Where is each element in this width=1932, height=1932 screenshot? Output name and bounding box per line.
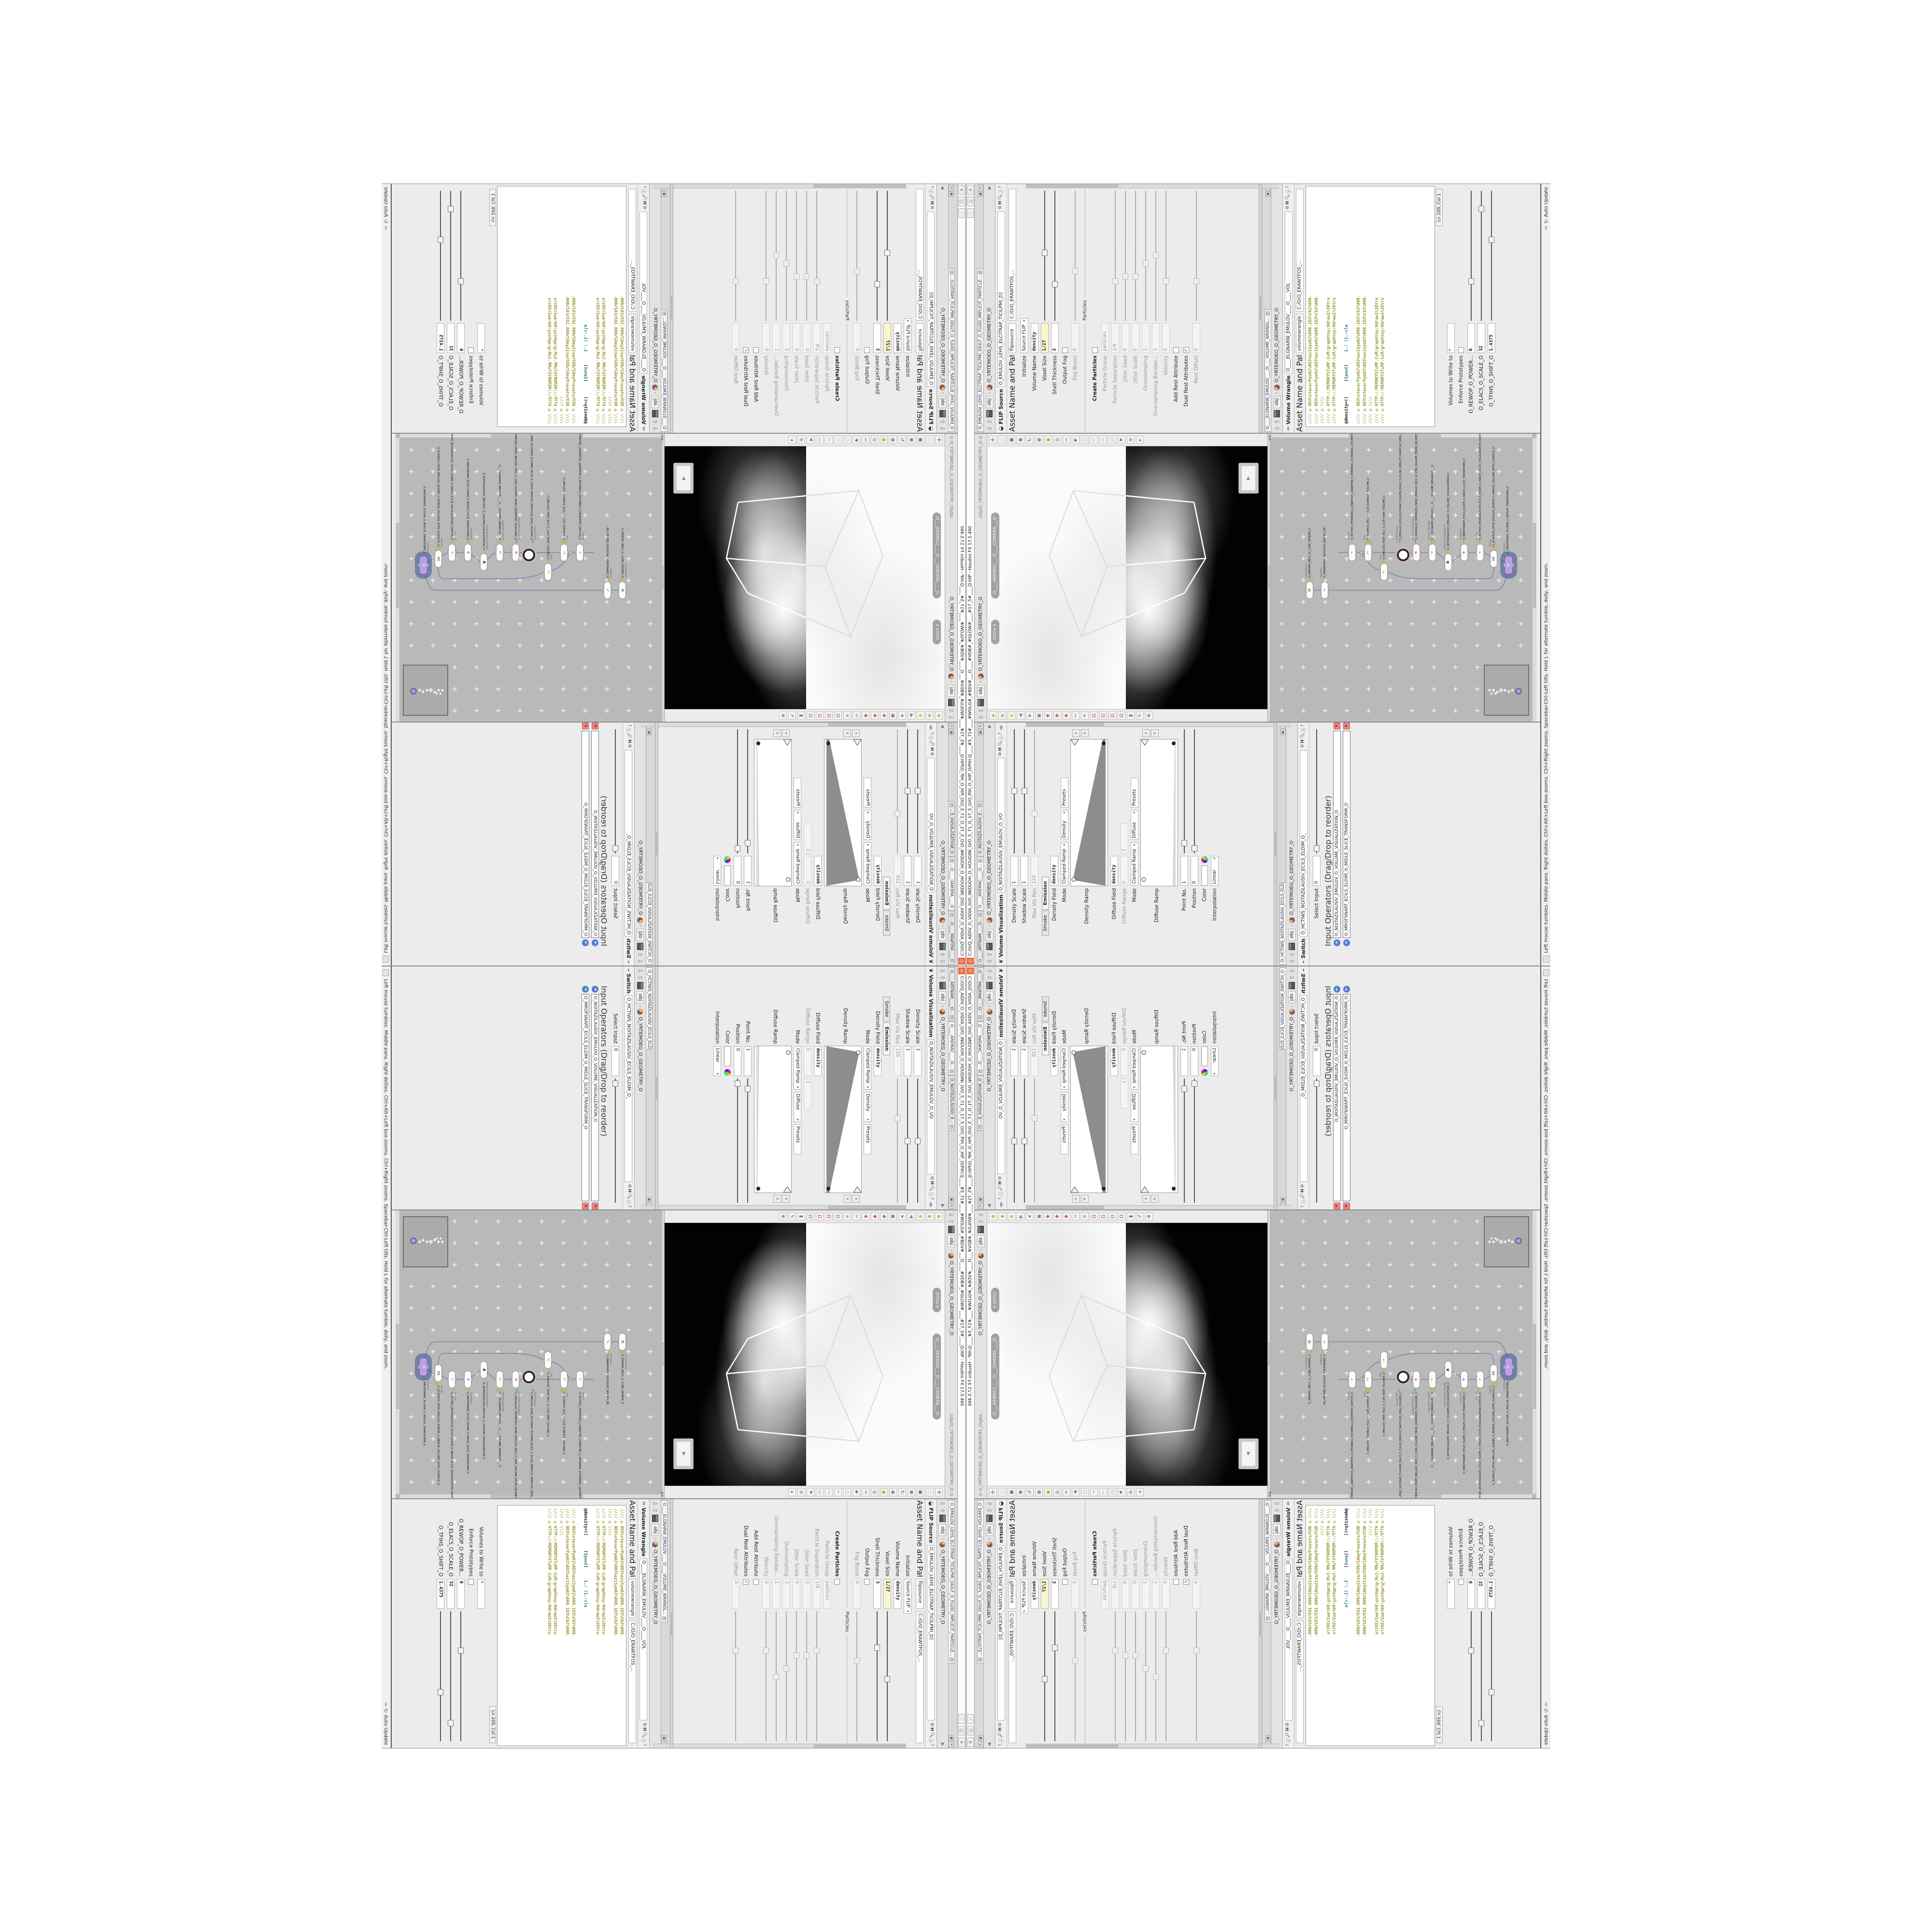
param-field[interactable]: 1: [914, 1046, 922, 1076]
pane-split-icon[interactable]: ▣: [978, 1735, 983, 1741]
pane-menu-icon[interactable]: ▾: [978, 185, 983, 190]
param-field[interactable]: particles: [824, 323, 831, 353]
network-node[interactable]: ✛: [419, 555, 428, 575]
viewport-tool-icon[interactable]: ✚: [871, 711, 879, 720]
param-field[interactable]: 0: [1132, 1579, 1139, 1609]
node-flag-dot[interactable]: [1430, 540, 1432, 543]
viewport-tool-icon[interactable]: ⊗: [908, 1488, 915, 1496]
param-field[interactable]: density: [1110, 856, 1118, 886]
viewport-tool-icon[interactable]: Ω: [807, 711, 814, 720]
reorder-arrow-icon[interactable]: ➜: [1334, 939, 1340, 946]
param-field[interactable]: Clamped Ramp: [1061, 842, 1068, 886]
nav-down-icon[interactable]: ⇩: [978, 715, 984, 720]
viewport-tool-icon[interactable]: ◌: [926, 1488, 934, 1496]
vex-code-editor[interactable]: //// ◎ 0D3%steserPym62%0D3%eziSym62%000.…: [489, 1505, 626, 1746]
viewport-tool-icon[interactable]: Ω: [816, 711, 824, 720]
viewport[interactable]: ◆◈◆◀➤▣✚✚✚✂✳ΩΩΩΩ▮✎❋ ✛◌▣⊗↻●◉◎✑☛○⌐¬▭⚑⊕▸: [987, 1210, 1267, 1498]
node-flag-dot[interactable]: [561, 1389, 563, 1392]
param-slider[interactable]: [776, 191, 777, 321]
param-field[interactable]: *: [478, 1579, 485, 1609]
viewport-tool-icon[interactable]: ◈: [926, 1212, 934, 1221]
param-field[interactable]: 1: [1021, 856, 1028, 886]
switch-name-field[interactable]: O_HCTIWS_NOITAZILAUSIV_ECILS_ELDIM_O_: [625, 995, 633, 1182]
pane-split-icon[interactable]: ▣: [978, 730, 983, 735]
asset-path-field[interactable]: C:/O/O_ERAWTFOS_...: [916, 1611, 924, 1743]
brush-icon[interactable]: ✑: [383, 1702, 389, 1706]
reorder-arrow-icon[interactable]: ➜: [582, 986, 589, 993]
param-slider[interactable]: [1054, 1611, 1055, 1741]
nav-down-icon[interactable]: ⇩: [939, 959, 946, 964]
asset-name-field[interactable]: volumewrangle: [1296, 314, 1304, 353]
viewport-tool-icon[interactable]: ◆: [935, 1212, 943, 1221]
checkbox-add-rest-attribute[interactable]: [753, 347, 759, 353]
pane-tab[interactable]: O_NOITAZILAUSIV_E...×: [949, 1076, 955, 1131]
tab-flip-pane[interactable]: O_EMULOV_LEHS_ELCITRAP_TICILPMI_DIULF_O_…: [977, 269, 983, 432]
param-slider[interactable]: [857, 1611, 858, 1741]
param-field[interactable]: 32: [447, 1579, 455, 1609]
param-field[interactable]: 3: [1051, 1579, 1059, 1609]
pane-split-icon[interactable]: ▣: [661, 191, 667, 197]
param-slider[interactable]: [1034, 1079, 1035, 1203]
param-field[interactable]: 32: [1477, 323, 1485, 353]
param-slider[interactable]: [1034, 729, 1035, 853]
pane-tab[interactable]: O____AREMAC____O...×: [949, 1022, 955, 1075]
tab-close-icon[interactable]: ×: [979, 1015, 982, 1019]
param-slider[interactable]: [1075, 191, 1076, 321]
breadcrumb-node[interactable]: O_YRTEMOEG_O_GEOMETRY_O: [940, 1017, 945, 1091]
param-slider[interactable]: [440, 1611, 441, 1741]
pane-menu-icon[interactable]: ▾: [949, 185, 954, 190]
vex-code-editor[interactable]: //// ◎ 0D3%steserPym62%0D3%eziSym62%000.…: [1306, 186, 1443, 427]
param-field[interactable]: 0: [804, 1046, 812, 1076]
viewport-tool-icon[interactable]: ⊕: [1127, 436, 1135, 444]
viewport-tool-icon[interactable]: ◀: [1017, 711, 1024, 720]
viewport-tool-icon[interactable]: ✛: [989, 1488, 997, 1496]
viewport-tool-icon[interactable]: ⊗: [908, 436, 915, 444]
viewport-tool-icon[interactable]: ⚑: [1118, 1488, 1125, 1496]
network-node[interactable]: ✛: [1461, 544, 1468, 561]
param-slider[interactable]: [1481, 191, 1482, 321]
volviz-scrollbar[interactable]: [641, 1205, 907, 1209]
breadcrumb-root[interactable]: obj: [1273, 1524, 1281, 1536]
pane-spinner-icon[interactable]: ◀▶: [929, 724, 933, 730]
breadcrumb-node[interactable]: O_YRTEMOEG_O_GEOMETRY_O: [978, 597, 983, 671]
tab-flip-pane[interactable]: O_EMULOV_LEHS_ELCITRAP_TICILPMI_DIULF_O_…: [949, 1500, 955, 1663]
param-slider[interactable]: [1054, 191, 1055, 321]
network-node[interactable]: ⌁: [448, 1371, 455, 1388]
switch-name-field[interactable]: O_HCTIWS_NOITAZILAUSIV_ECILS_ELDIM_O_: [1300, 995, 1307, 1182]
network-hscrollbar[interactable]: [1532, 438, 1536, 722]
param-field[interactable]: particles: [1101, 1579, 1109, 1609]
viewport-tool-icon[interactable]: Ω: [834, 711, 842, 720]
viewport-tool-icon[interactable]: ➤: [898, 711, 906, 720]
ramp-widget[interactable]: Diffuse Ramp+×: [1140, 727, 1178, 965]
camera-pill[interactable]: O____AREMAC___O____CAMERA___O: [933, 1334, 941, 1420]
pane-splitter[interactable]: [1259, 1499, 1262, 1748]
presets-button[interactable]: Presets: [1131, 778, 1138, 808]
pane-tab[interactable]: O____ARTNAM____O...×: [977, 967, 983, 1021]
network-editor[interactable]: ⌁SwitchO_HCTIWS_YRTEMOEG_LANRETXE_LANRET…: [396, 434, 661, 722]
path-more-button[interactable]: ▶: [940, 1204, 945, 1207]
nav-up-icon[interactable]: ⇧: [1274, 419, 1280, 424]
param-slider[interactable]: [1471, 1611, 1472, 1741]
nav-up-icon[interactable]: ⇧: [986, 975, 993, 980]
viewport-tool-icon[interactable]: ☛: [1072, 1488, 1080, 1496]
viewport-tool-icon[interactable]: ✚: [880, 711, 888, 720]
ramp-widget[interactable]: Density Ramp+×: [824, 727, 862, 965]
asset-path-field[interactable]: C:/O/O_ERAWTFOS_...: [1296, 1620, 1304, 1743]
tab-wrangle-pane[interactable]: O____ELGNARW_EMULOV____O____VOLUME_WRANG…: [1264, 310, 1271, 432]
tab-close-icon[interactable]: ×: [950, 913, 953, 917]
param-field[interactable]: 6: [1467, 323, 1475, 353]
param-field[interactable]: density: [1031, 1579, 1038, 1609]
viewport-tool-icon[interactable]: ➤: [1026, 1212, 1034, 1221]
param-slider[interactable]: [1194, 1079, 1195, 1203]
ramp-remove-button[interactable]: ×: [773, 1195, 781, 1203]
asset-name-field[interactable]: flipsource: [916, 1579, 924, 1609]
volviz-name-field[interactable]: O_NOITAZILAUSIV_EMULOV_O_VO: [997, 1039, 1005, 1174]
viewport-tool-icon[interactable]: ◉: [1044, 1488, 1052, 1496]
refresh-icon[interactable]: ↻: [383, 219, 389, 224]
node-flag-dot[interactable]: [532, 1389, 534, 1392]
tab-close-icon[interactable]: ×: [979, 1658, 982, 1662]
param-field[interactable]: 3: [1051, 323, 1059, 353]
tab-close-icon[interactable]: ×: [979, 270, 982, 274]
node-flag-dot[interactable]: [1381, 1370, 1384, 1372]
pane-split-icon[interactable]: ▣: [1280, 1197, 1286, 1202]
node-flag-dot[interactable]: [1365, 1389, 1368, 1392]
tab-close-icon[interactable]: ×: [662, 1617, 666, 1620]
pin-icon[interactable]: ⊙: [979, 436, 983, 440]
param-field[interactable]: Clamped Ramp: [794, 842, 802, 886]
node-flag-dot[interactable]: [619, 578, 622, 581]
viewport-tool-icon[interactable]: ✚: [1053, 1212, 1061, 1221]
param-slider[interactable]: [1044, 1611, 1045, 1741]
viewport-tool-icon[interactable]: Ω: [816, 1212, 824, 1221]
param-slider[interactable]: [615, 729, 616, 853]
viewport-tool-icon[interactable]: ☛: [1072, 436, 1080, 444]
pane-splitter[interactable]: [670, 184, 673, 433]
viewport-tool-icon[interactable]: ❋: [779, 711, 787, 720]
nav-up-icon[interactable]: ⇧: [637, 952, 644, 957]
nav-down-icon[interactable]: ⇩: [652, 1501, 659, 1506]
network-node[interactable]: ✄: [1364, 544, 1372, 561]
maximize-button[interactable]: ▢: [967, 1726, 974, 1735]
color-swatch[interactable]: [724, 1046, 731, 1066]
viewport-tool-icon[interactable]: ◆: [917, 1212, 924, 1221]
minimize-button[interactable]: –: [967, 1714, 974, 1724]
param-field[interactable]: 1/9: [813, 323, 821, 353]
wrangle-name-field[interactable]: O____ELGNARW_EMULOV____O____VOL: [640, 1559, 648, 1721]
param-slider[interactable]: [1075, 1611, 1076, 1741]
param-slider[interactable]: [1491, 1611, 1492, 1741]
viewport-tool-icon[interactable]: ➤: [898, 1212, 906, 1221]
nav-up-icon[interactable]: ⇧: [637, 975, 644, 980]
ramp-target-select[interactable]: Diffuse: [1131, 1092, 1138, 1122]
network-node[interactable]: ∿: [604, 582, 611, 599]
network-node[interactable]: ✑: [1429, 1371, 1436, 1388]
param-field[interactable]: 0: [1121, 1046, 1128, 1076]
param-field[interactable]: 0: [1122, 1579, 1129, 1609]
viewport-tool-icon[interactable]: Ω: [1099, 711, 1107, 720]
remove-input-icon[interactable]: ✕: [582, 723, 589, 729]
input-operator-field[interactable]: O_NOITAZILAUSIV_EMULOV_O_VOLUME_VISUALIZ…: [591, 994, 599, 1201]
network-node[interactable]: ✄: [544, 563, 552, 581]
asset-path-field[interactable]: C:/O/O_ERAWTFOS_...: [1009, 1611, 1016, 1743]
ramp-widget[interactable]: Density Ramp+×: [824, 967, 862, 1205]
breadcrumb-root[interactable]: obj: [652, 1524, 659, 1536]
network-editor[interactable]: ⌁SwitchO_HCTIWS_YRTEMOEG_LANRETXE_LANRET…: [1271, 434, 1536, 722]
viewport-tool-icon[interactable]: ▸: [788, 436, 796, 444]
param-field[interactable]: 1/27: [884, 323, 892, 353]
volviz-scrollbar[interactable]: [641, 723, 907, 727]
ramp-target-select[interactable]: Diffuse: [794, 810, 802, 840]
network-node[interactable]: ✑: [496, 544, 503, 561]
wrangle-name-field[interactable]: O____ELGNARW_EMULOV____O____VOL: [640, 212, 648, 374]
node-flag-dot[interactable]: [1477, 1389, 1480, 1392]
viewport-tool-icon[interactable]: ✎: [1136, 1212, 1144, 1221]
ramp-remove-button[interactable]: ×: [1151, 729, 1159, 737]
ramp-widget[interactable]: Diffuse Ramp+×: [754, 967, 792, 1205]
tab-close-icon[interactable]: ×: [979, 1069, 982, 1073]
flip-name-field[interactable]: O_EMULOV_LEHS_ELCITRAP_TICILPMI_D]: [927, 212, 935, 387]
remove-input-icon[interactable]: ✕: [1334, 723, 1340, 729]
nav-up-icon[interactable]: ⇧: [939, 975, 946, 980]
param-field[interactable]: Linear: [1211, 856, 1219, 886]
flip-scrollbar[interactable]: [1025, 184, 1279, 188]
ramp-widget[interactable]: Diffuse Ramp+×: [754, 727, 792, 965]
viewport-tool-icon[interactable]: ¬: [1099, 436, 1107, 444]
presets-button[interactable]: Presets: [864, 778, 872, 808]
pane-menu-icon[interactable]: ▾: [949, 724, 954, 729]
param-field[interactable]: 1: [904, 856, 912, 886]
node-flag-dot[interactable]: [1414, 540, 1416, 543]
path-more-button[interactable]: ▶: [987, 1743, 992, 1746]
node-flag-dot[interactable]: [1462, 1389, 1464, 1392]
network-editor[interactable]: ⌁SwitchO_HCTIWS_YRTEMOEG_LANRETXE_LANRET…: [396, 1210, 661, 1498]
node-flag-dot[interactable]: [1433, 1389, 1435, 1392]
nav-down-icon[interactable]: ⇩: [939, 968, 946, 973]
auto-update-selector[interactable]: Auto Update: [1544, 187, 1549, 217]
viewport-tool-icon[interactable]: ▣: [1008, 436, 1015, 444]
network-node[interactable]: ✑: [496, 1371, 503, 1388]
nav-up-icon[interactable]: ⇧: [652, 419, 659, 424]
checkbox-create-particles[interactable]: [835, 1579, 840, 1585]
param-field[interactable]: density: [1051, 856, 1058, 886]
nav-up-icon[interactable]: ⇧: [948, 708, 955, 713]
param-field[interactable]: 1: [904, 1046, 912, 1076]
param-field[interactable]: 1: [914, 856, 922, 886]
node-flag-dot[interactable]: [532, 540, 534, 543]
network-hscrollbar[interactable]: [396, 1210, 400, 1494]
checkbox-dual-rest-attributes[interactable]: ✓: [1183, 1579, 1189, 1585]
viewport-tool-icon[interactable]: ◆: [989, 711, 997, 720]
param-field[interactable]: 1: [1180, 1046, 1188, 1076]
param-field[interactable]: density: [1031, 323, 1038, 353]
viewport-tool-icon[interactable]: ◉: [880, 436, 888, 444]
viewport-tool-icon[interactable]: ▣: [889, 711, 897, 720]
param-field[interactable]: density: [1051, 1046, 1058, 1076]
node-flag-dot[interactable]: [1462, 540, 1464, 543]
viewport-tool-icon[interactable]: ▣: [1035, 711, 1043, 720]
viewport-tool-icon[interactable]: ◉: [1044, 436, 1052, 444]
pane-menu-icon[interactable]: ▾: [978, 1203, 983, 1208]
switch-name-field[interactable]: O_HCTIWS_NOITAZILAUSIV_ECILS_ELDIM_O_: [1300, 750, 1307, 937]
nav-up-icon[interactable]: ⇧: [986, 1508, 993, 1513]
checkbox-dual-rest-attributes[interactable]: ✓: [743, 1579, 749, 1585]
param-slider[interactable]: [817, 1611, 818, 1741]
param-slider[interactable]: [807, 191, 808, 321]
param-slider[interactable]: [1014, 1079, 1015, 1203]
param-field[interactable]: density: [894, 1579, 902, 1609]
breadcrumb-node[interactable]: O_YRTEMOEG_O_GEOMETRY_O: [653, 1549, 658, 1624]
breadcrumb-node[interactable]: O_YRTEMOEG_O_GEOMETRY_O: [949, 1261, 954, 1335]
tab-close-icon[interactable]: ×: [950, 859, 953, 863]
viewport-tool-icon[interactable]: ◉: [880, 1488, 888, 1496]
param-field[interactable]: 0: [853, 1579, 861, 1609]
param-slider[interactable]: [796, 191, 797, 321]
color-wheel-icon[interactable]: [724, 1069, 731, 1076]
tab-close-icon[interactable]: ×: [950, 803, 953, 807]
pane-tab[interactable]: O____AREMAC____O...×: [977, 857, 983, 910]
param-slider[interactable]: [1014, 729, 1015, 853]
viewport-tool-icon[interactable]: ◎: [1053, 1488, 1061, 1496]
node-flag-dot[interactable]: [1322, 578, 1324, 581]
viewport-tool-icon[interactable]: ⊗: [1017, 1488, 1024, 1496]
subtab-smoke[interactable]: Smoke: [883, 910, 890, 936]
remove-input-icon[interactable]: ✕: [1334, 1203, 1340, 1209]
volviz-scrollbar[interactable]: [1025, 723, 1291, 727]
param-field[interactable]: particles: [824, 1579, 831, 1609]
pane-splitter[interactable]: [670, 1499, 673, 1748]
viewport-tool-icon[interactable]: ◀: [1017, 1212, 1024, 1221]
node-flag-dot[interactable]: [468, 540, 470, 543]
node-flag-dot[interactable]: [1310, 578, 1313, 581]
ramp-target-select[interactable]: Diffuse: [1131, 810, 1138, 840]
subtab-emission[interactable]: Emission: [883, 877, 890, 909]
tab-switch-pane[interactable]: O_HCTIWS_NOITAZILAUSIV_ECILS_ELDIM_O_...…: [646, 967, 653, 1050]
node-flag-dot[interactable]: [564, 540, 567, 543]
network-node[interactable]: ✛: [464, 1371, 471, 1388]
reorder-arrow-icon[interactable]: ➜: [582, 939, 589, 946]
ramp-add-button[interactable]: +: [782, 1195, 790, 1203]
nav-down-icon[interactable]: ⇩: [1274, 426, 1280, 431]
viewport-tool-icon[interactable]: ◆: [1008, 1212, 1015, 1221]
param-field[interactable]: 0: [734, 856, 742, 886]
tab-close-icon[interactable]: ×: [662, 312, 666, 315]
window-titlebar[interactable]: ◎ C:/O/Q_AIDIV_O_VIDIA_O/O_INIDUOH_O_HOU…: [957, 184, 966, 966]
param-slider[interactable]: [1135, 191, 1136, 321]
param-slider[interactable]: [738, 729, 739, 853]
param-slider[interactable]: [1196, 191, 1197, 321]
viewport-tool-icon[interactable]: ▮: [1127, 1212, 1135, 1221]
breadcrumb-root[interactable]: obj: [652, 396, 659, 408]
node-flag-dot[interactable]: [439, 1383, 441, 1385]
breadcrumb-node[interactable]: O_YRTEMOEG_O_GEOMETRY_O: [638, 1017, 643, 1091]
viewport-tool-icon[interactable]: ✳: [843, 711, 851, 720]
network-minimap[interactable]: [1484, 1216, 1529, 1267]
viewport-tool-icon[interactable]: ⌐: [834, 1488, 842, 1496]
viewport-tool-icon[interactable]: ✚: [862, 711, 869, 720]
nav-down-icon[interactable]: ⇩: [1289, 959, 1295, 964]
viewport-tool-icon[interactable]: ¬: [1099, 1488, 1107, 1496]
view-mode-pill[interactable]: Ortho ▾: [933, 620, 941, 644]
input-operator-field[interactable]: O_MROFSNART_ECILS_ELDIM_O_MIDLE_SLICE_TR…: [582, 731, 589, 938]
breadcrumb-root[interactable]: obj: [986, 929, 994, 941]
flip-scrollbar[interactable]: [653, 1744, 907, 1748]
network-hscrollbar[interactable]: [1532, 1210, 1536, 1494]
pin-icon[interactable]: ⊙: [949, 1492, 954, 1496]
nav-up-icon[interactable]: ⇧: [1274, 1508, 1280, 1513]
param-field[interactable]: density: [814, 1046, 822, 1076]
ramp-add-button[interactable]: +: [1142, 1195, 1150, 1203]
color-wheel-icon[interactable]: [1201, 1069, 1208, 1076]
close-button[interactable]: ✕: [959, 1737, 965, 1747]
node-flag-dot[interactable]: [1414, 1389, 1416, 1392]
param-field[interactable]: 1: [1152, 323, 1160, 353]
param-slider[interactable]: [736, 1611, 737, 1741]
node-flag-dot[interactable]: [452, 1389, 455, 1392]
viewport-tool-icon[interactable]: ▸: [1136, 1488, 1144, 1496]
param-field[interactable]: 1: [1152, 1579, 1160, 1609]
param-field[interactable]: 0: [612, 856, 620, 886]
window-titlebar[interactable]: ◎ C:/O/Q_AIDIV_O_VIDIA_O/O_INIDUOH_O_HOU…: [966, 184, 975, 966]
ramp-add-button[interactable]: +: [1072, 1195, 1080, 1203]
node-flag-dot[interactable]: [497, 1389, 499, 1392]
network-editor[interactable]: ⌁SwitchO_HCTIWS_YRTEMOEG_LANRETXE_LANRET…: [1271, 1210, 1536, 1498]
checkbox-enforce-prototypes[interactable]: [1458, 347, 1464, 353]
viewport-tool-icon[interactable]: Ω: [1099, 1212, 1107, 1221]
tab-close-icon[interactable]: ×: [979, 913, 982, 917]
network-node[interactable]: ♣: [1445, 554, 1452, 571]
param-field[interactable]: *: [1447, 1579, 1455, 1609]
node-flag-dot[interactable]: [1494, 1383, 1497, 1385]
pane-split-icon[interactable]: ▣: [949, 191, 954, 197]
viewport-tool-icon[interactable]: ✚: [1044, 1212, 1052, 1221]
checkbox-output-fog[interactable]: [865, 1579, 870, 1585]
color-wheel-icon[interactable]: [724, 856, 731, 863]
viewport-tool-icon[interactable]: ▮: [797, 711, 805, 720]
network-minimap[interactable]: [403, 665, 448, 716]
viewport-tool-icon[interactable]: ¬: [825, 436, 833, 444]
param-field[interactable]: 1/9: [813, 1579, 821, 1609]
node-flag-dot[interactable]: [484, 550, 486, 553]
viewport-tool-icon[interactable]: ◌: [998, 1488, 1006, 1496]
param-field[interactable]: 1/9: [1111, 323, 1119, 353]
nav-up-icon[interactable]: ⇧: [939, 952, 946, 957]
param-field[interactable]: Source FLIP: [904, 1579, 912, 1614]
param-field[interactable]: 1.4375: [437, 323, 445, 353]
network-node[interactable]: ⊕: [619, 582, 626, 599]
maximize-button[interactable]: ▢: [959, 197, 965, 206]
presets-button[interactable]: Presets: [1061, 778, 1068, 808]
viewport-tool-icon[interactable]: ✂: [1072, 1212, 1080, 1221]
viewport-tool-icon[interactable]: ✑: [1063, 436, 1070, 444]
network-node[interactable]: ✛: [419, 1357, 428, 1377]
viewport-tool-icon[interactable]: ○: [1081, 436, 1089, 444]
vex-code-editor[interactable]: //// ◎ 0D3%steserPym62%0D3%eziSym62%000.…: [489, 186, 626, 427]
node-flag-dot[interactable]: [1322, 1351, 1324, 1354]
param-slider[interactable]: [766, 1611, 767, 1741]
param-field[interactable]: 0: [1122, 323, 1129, 353]
breadcrumb-root[interactable]: obj: [1273, 396, 1281, 408]
ramp-widget[interactable]: Density Ramp+×: [1070, 967, 1108, 1205]
param-field[interactable]: Clamped Ramp: [1131, 842, 1138, 886]
param-field[interactable]: 0: [1132, 323, 1139, 353]
viewport-tool-icon[interactable]: ⚑: [807, 1488, 814, 1496]
node-flag-dot[interactable]: [1310, 1351, 1313, 1354]
viewport-tool-icon[interactable]: ◈: [998, 1212, 1006, 1221]
